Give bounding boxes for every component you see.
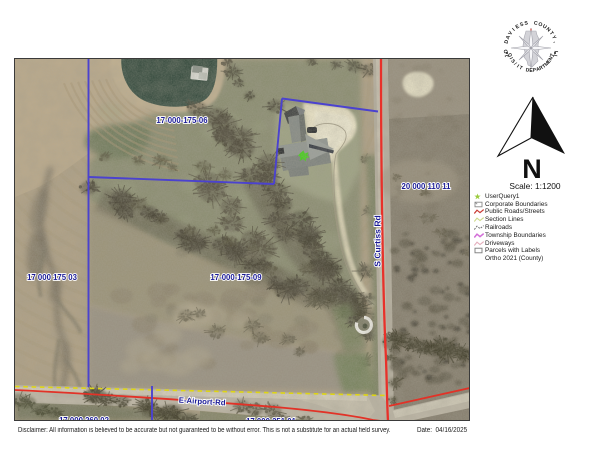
svg-text:S Curtiss Rd: S Curtiss Rd — [373, 215, 383, 267]
svg-text:17-000-175-06: 17-000-175-06 — [156, 116, 208, 125]
svg-text:17 000 175 03: 17 000 175 03 — [27, 273, 78, 282]
svg-text:17 000 260 02: 17 000 260 02 — [59, 416, 110, 421]
svg-text:,: , — [552, 41, 558, 44]
svg-text:17 000 251 01: 17 000 251 01 — [246, 417, 297, 421]
svg-text:S: S — [524, 20, 529, 27]
svg-text:17-000-175-09: 17-000-175-09 — [210, 273, 262, 282]
svg-text:20 000 110 11: 20 000 110 11 — [401, 182, 451, 191]
